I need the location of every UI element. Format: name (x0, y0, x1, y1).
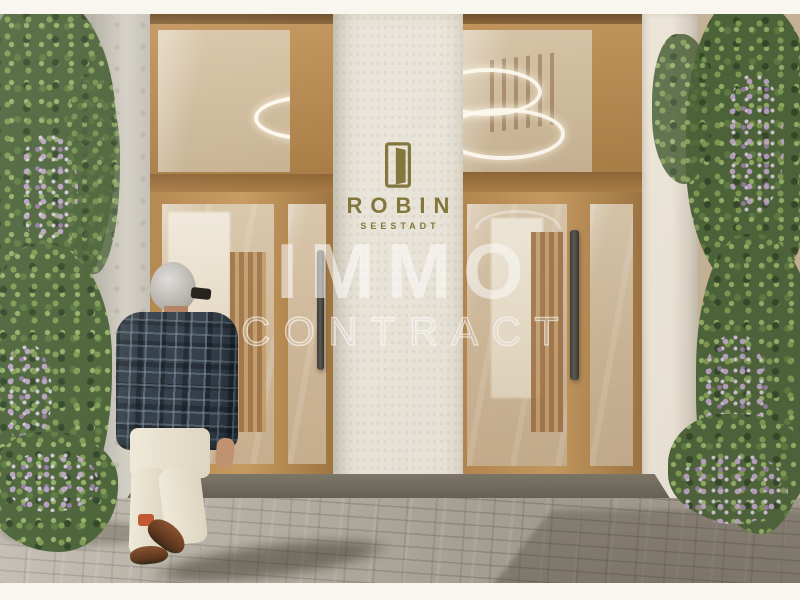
entrance-pillar: ROBIN SEESTADT (333, 14, 463, 500)
letterbox-top (0, 0, 800, 14)
ring-pendant-light (254, 96, 290, 140)
brand-subtitle: SEESTADT (333, 221, 463, 231)
entrance-render: ROBIN SEESTADT (0, 14, 800, 583)
gray-hair (150, 262, 196, 312)
purple-flowers (18, 134, 78, 244)
purple-flowers (678, 454, 788, 524)
purple-flowers (724, 74, 784, 214)
real-estate-photo: ROBIN SEESTADT (0, 0, 800, 600)
right-hand (214, 437, 235, 469)
right-transom-bar (455, 172, 645, 194)
purple-flowers (2, 344, 52, 444)
right-door-handle (570, 230, 579, 380)
right-door-glass (467, 204, 567, 466)
left-transom-glass (158, 30, 290, 172)
interior-wood-slats (531, 232, 563, 432)
letterbox-bottom (0, 583, 800, 600)
right-transom-glass (462, 30, 592, 174)
brand-name: ROBIN (333, 194, 463, 218)
robin-logo: ROBIN SEESTADT (333, 142, 463, 231)
purple-flowers (4, 452, 99, 512)
sunglasses (190, 287, 211, 300)
right-sidelight-glass (590, 204, 633, 466)
right-climbing-vines (652, 34, 712, 184)
left-door-handle (317, 250, 324, 370)
pedestrian-man (112, 262, 242, 583)
door-icon (385, 142, 411, 188)
ring-pendant-light (462, 108, 565, 160)
